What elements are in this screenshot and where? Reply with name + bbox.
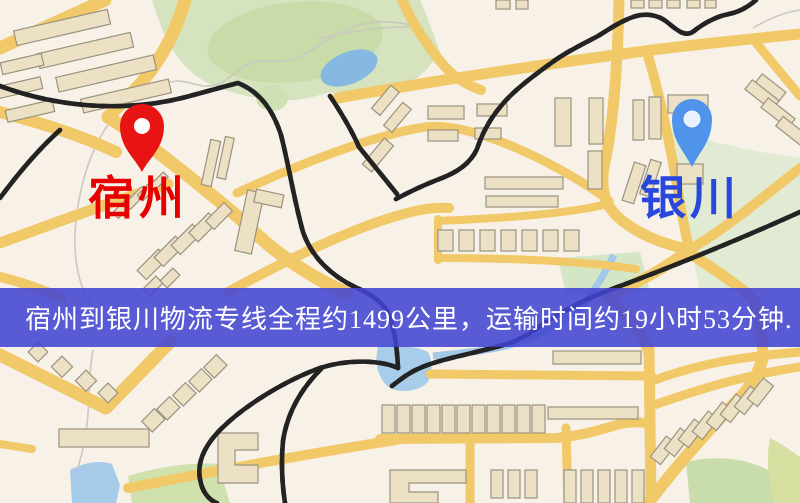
origin-pin-hole [134, 118, 150, 134]
destination-city-label: 银川 [640, 176, 740, 222]
destination-pin-shape [672, 99, 712, 167]
route-info-banner: 宿州到银川物流专线全程约1499公里，运输时间约19小时53分钟. [0, 288, 800, 347]
origin-pin [114, 100, 170, 177]
destination-pin [667, 97, 717, 172]
origin-city-label: 宿州 [88, 176, 188, 222]
map-screenshot: 宿州 银川 宿州到银川物流专线全程约1499公里，运输时间约19小时53分钟. [0, 0, 800, 503]
route-info-text: 宿州到银川物流专线全程约1499公里，运输时间约19小时53分钟. [0, 299, 793, 336]
map-canvas [0, 0, 800, 503]
origin-pin-shape [120, 104, 164, 172]
destination-pin-hole [684, 111, 701, 128]
